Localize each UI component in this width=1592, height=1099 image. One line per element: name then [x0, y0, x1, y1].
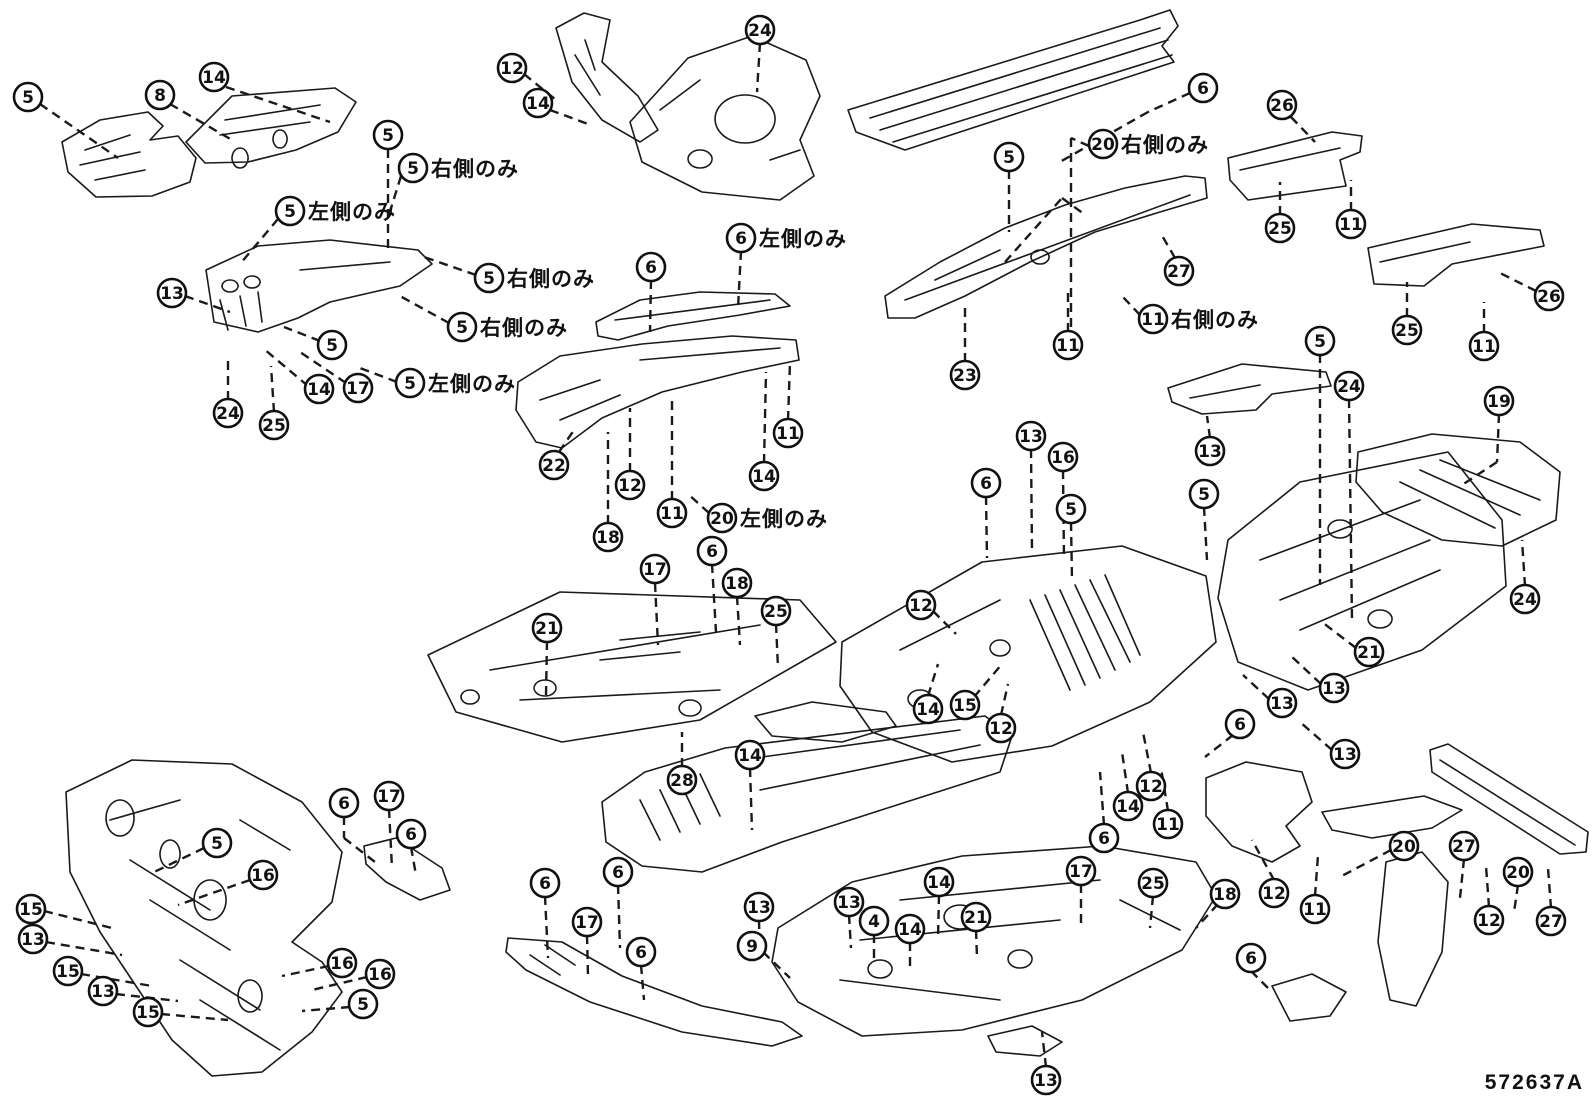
callout-6-80[interactable]: 6 [330, 789, 358, 817]
callout-side-note: 左側のみ [428, 372, 516, 396]
callout-number: 14 [927, 873, 951, 893]
callout-number: 16 [368, 965, 392, 985]
callout-20-22[interactable]: 20右側のみ [1089, 130, 1209, 158]
callout-number: 5 [456, 318, 468, 338]
leader-line [938, 895, 939, 938]
callout-11-26[interactable]: 11右側のみ [1139, 305, 1259, 333]
callout-6-85[interactable]: 6 [604, 858, 632, 886]
callout-14-47[interactable]: 14 [750, 462, 778, 490]
callout-6-20[interactable]: 6 [1189, 74, 1217, 102]
callout-number: 17 [377, 787, 401, 807]
leader-line [1460, 859, 1464, 898]
callout-side-note: 右側のみ [1171, 308, 1259, 332]
callout-14-11[interactable]: 14 [305, 375, 333, 403]
leader-line [928, 664, 938, 696]
callout-number: 25 [764, 602, 788, 622]
leader-line [271, 366, 274, 412]
callout-20-102[interactable]: 20 [1504, 858, 1532, 886]
leader-line [178, 880, 250, 905]
callout-number: 24 [216, 404, 240, 424]
callout-number: 12 [1477, 911, 1501, 931]
callout-24-64[interactable]: 24 [1511, 585, 1539, 613]
leader-line [1205, 735, 1233, 757]
callout-number: 14 [526, 94, 550, 114]
callout-6-82[interactable]: 6 [397, 820, 425, 848]
callout-24-13[interactable]: 24 [214, 399, 242, 427]
part-rear-side-member-rear [1368, 224, 1544, 286]
callout-16-77[interactable]: 16 [328, 949, 356, 977]
leader-line [618, 885, 620, 948]
callout-number: 14 [752, 467, 776, 487]
leader-line [150, 848, 204, 874]
callout-14-61[interactable]: 14 [1114, 792, 1142, 820]
leader-line [738, 251, 741, 308]
callout-21-65[interactable]: 21 [1355, 638, 1383, 666]
callout-12-59[interactable]: 12 [987, 714, 1015, 742]
callout-number: 27 [1539, 912, 1563, 932]
callout-9-88[interactable]: 9 [738, 932, 766, 960]
leader-line [1207, 416, 1210, 438]
leader-line [1338, 850, 1391, 878]
callout-14-58[interactable]: 14 [914, 695, 942, 723]
callout-15-72[interactable]: 15 [17, 895, 45, 923]
callout-number: 18 [725, 574, 749, 594]
callout-17-12[interactable]: 17 [344, 374, 372, 402]
part-rear-floor-pan-side [1356, 434, 1560, 546]
part-rear-floor-side-plate [1168, 364, 1331, 414]
leader-line [284, 327, 320, 341]
part-rear-side-member-front [1228, 132, 1362, 200]
callout-6-86[interactable]: 6 [627, 938, 655, 966]
callout-11-46[interactable]: 11 [774, 419, 802, 447]
callout-12-3[interactable]: 12 [498, 54, 526, 82]
callout-number: 17 [346, 379, 370, 399]
callout-12-56[interactable]: 12 [907, 591, 935, 619]
callout-11-25[interactable]: 11 [1054, 331, 1082, 359]
callout-13-87[interactable]: 13 [745, 893, 773, 921]
callout-12-43[interactable]: 12 [616, 471, 644, 499]
callout-13-38[interactable]: 13 [1017, 422, 1045, 450]
callout-side-note: 右側のみ [431, 157, 519, 181]
leader-line [1243, 675, 1269, 699]
leader-line [1252, 840, 1274, 880]
part-front-floor-side-member [516, 336, 799, 448]
callout-number: 6 [1098, 829, 1110, 849]
callout-25-95[interactable]: 25 [1139, 869, 1167, 897]
callout-24-5[interactable]: 24 [746, 16, 774, 44]
leader-line [545, 896, 548, 958]
leader-line [1486, 866, 1489, 907]
callout-number: 16 [251, 866, 275, 886]
leader-line [788, 362, 790, 420]
callout-side-note: 右側のみ [507, 267, 595, 291]
leader-line [1522, 540, 1525, 586]
callout-number: 12 [989, 719, 1013, 739]
callout-13-89[interactable]: 13 [835, 888, 863, 916]
leader-line [1031, 449, 1032, 552]
callout-side-note: 左側のみ [759, 227, 847, 251]
leader-line [170, 104, 232, 140]
leader-line [282, 966, 329, 976]
callout-number: 17 [643, 560, 667, 580]
callout-number: 13 [21, 930, 45, 950]
callout-number: 6 [645, 258, 657, 278]
callout-5-21[interactable]: 5 [995, 143, 1023, 171]
callout-number: 19 [1487, 392, 1511, 412]
callout-number: 18 [1213, 885, 1237, 905]
callout-number: 14 [307, 380, 331, 400]
callout-17-49[interactable]: 17 [641, 555, 669, 583]
callout-25-14[interactable]: 25 [260, 411, 288, 439]
callout-number: 12 [500, 59, 524, 79]
leader-line [1204, 507, 1207, 560]
leader-line [1143, 732, 1151, 773]
callout-21-53[interactable]: 21 [533, 614, 561, 642]
callout-5-8[interactable]: 5左側のみ [276, 197, 396, 225]
callout-number: 26 [1537, 287, 1561, 307]
callout-6-105[interactable]: 6 [1237, 944, 1265, 972]
leader-line [1291, 117, 1315, 142]
leader-line [688, 494, 709, 513]
callout-number: 24 [748, 21, 772, 41]
part-front-side-member-rear-section [885, 176, 1207, 318]
leader-line [1196, 904, 1218, 928]
callout-6-19[interactable]: 6左側のみ [727, 224, 847, 252]
part-rear-crossmember-brace [1322, 796, 1462, 838]
callout-number: 21 [964, 908, 988, 928]
callout-number: 15 [56, 962, 80, 982]
callout-number: 13 [1270, 694, 1294, 714]
diagram-line-art: 581412142455右側のみ5左側のみ135141724255右側のみ5右側… [0, 0, 1592, 1099]
part-rocker-outer-panel [848, 10, 1178, 150]
callout-number: 16 [1051, 448, 1075, 468]
leader-line [750, 768, 752, 830]
callout-number: 5 [404, 374, 416, 394]
callout-14-2[interactable]: 14 [200, 63, 228, 91]
callout-14-91[interactable]: 14 [896, 915, 924, 943]
part-center-floor-pan [840, 546, 1216, 762]
callout-12-103[interactable]: 12 [1475, 906, 1503, 934]
callout-number: 6 [405, 825, 417, 845]
callout-number: 13 [1322, 679, 1346, 699]
callout-13-9[interactable]: 13 [158, 279, 186, 307]
callout-5-37[interactable]: 5 [1190, 480, 1218, 508]
part-floor-bracket-small [1272, 974, 1346, 1021]
callout-number: 21 [535, 619, 559, 639]
callout-15-57[interactable]: 15 [951, 691, 979, 719]
callout-14-55[interactable]: 14 [736, 741, 764, 769]
leader-line [240, 219, 278, 264]
callout-16-71[interactable]: 16 [249, 861, 277, 889]
callout-number: 25 [1141, 874, 1165, 894]
callout-number: 24 [1513, 590, 1537, 610]
leader-line [400, 296, 449, 323]
callout-13-73[interactable]: 13 [19, 925, 47, 953]
leader-line [1042, 1032, 1046, 1067]
callout-8-1[interactable]: 8 [146, 81, 174, 109]
callout-number: 11 [1472, 337, 1496, 357]
callout-5-70[interactable]: 5 [203, 829, 231, 857]
callout-number: 26 [1270, 96, 1294, 116]
callout-5-34[interactable]: 5 [1306, 327, 1334, 355]
callout-23-24[interactable]: 23 [951, 361, 979, 389]
callout-5-16[interactable]: 5右側のみ [475, 264, 595, 292]
callout-number: 13 [1333, 745, 1357, 765]
callout-26-27[interactable]: 26 [1268, 91, 1296, 119]
callout-26-30[interactable]: 26 [1535, 282, 1563, 310]
leader-line [986, 496, 987, 558]
callout-27-101[interactable]: 27 [1450, 832, 1478, 860]
leader-line [1300, 722, 1332, 750]
callout-number: 13 [91, 982, 115, 1002]
callout-number: 25 [262, 416, 286, 436]
callout-number: 16 [330, 954, 354, 974]
callout-21-93[interactable]: 21 [962, 903, 990, 931]
callout-18-51[interactable]: 18 [723, 569, 751, 597]
callout-6-50[interactable]: 6 [698, 537, 726, 565]
callout-number: 11 [1056, 336, 1080, 356]
callout-5-17[interactable]: 5左側のみ [396, 369, 516, 397]
leader-line [737, 596, 740, 645]
leader-line [1148, 93, 1190, 112]
callout-11-62[interactable]: 11 [1154, 810, 1182, 838]
callout-number: 5 [357, 995, 369, 1015]
part-front-wheelhouse-panel [630, 36, 820, 200]
callout-4-90[interactable]: 4 [860, 907, 888, 935]
callout-number: 6 [635, 943, 647, 963]
leader-line [264, 349, 308, 386]
callout-number: 17 [1069, 862, 1093, 882]
callout-number: 17 [575, 913, 599, 933]
leader-line [550, 110, 588, 124]
callout-18-45[interactable]: 18 [594, 523, 622, 551]
leader-line [641, 965, 644, 1000]
callout-12-98[interactable]: 12 [1260, 879, 1288, 907]
callout-5-15[interactable]: 5右側のみ [448, 313, 568, 341]
part-crossmember-side-support [1378, 852, 1448, 1006]
callout-number: 13 [1034, 1071, 1058, 1091]
callout-number: 14 [916, 700, 940, 720]
callout-number: 14 [738, 746, 762, 766]
callout-25-31[interactable]: 25 [1393, 316, 1421, 344]
callout-13-67[interactable]: 13 [1268, 689, 1296, 717]
callout-number: 20 [710, 509, 734, 529]
callout-number: 12 [909, 596, 933, 616]
callout-number: 5 [326, 336, 338, 356]
leader-line [933, 611, 956, 634]
leader-line [1150, 896, 1153, 928]
leader-line [712, 564, 716, 632]
leader-line [302, 1007, 350, 1011]
callout-number: 6 [980, 474, 992, 494]
callout-number: 14 [1116, 797, 1140, 817]
callout-14-4[interactable]: 14 [524, 89, 552, 117]
callout-number: 13 [1019, 427, 1043, 447]
callout-5-6[interactable]: 5 [374, 121, 402, 149]
callout-5-10[interactable]: 5 [318, 331, 346, 359]
leader-line [1071, 138, 1089, 146]
callout-side-note: 左側のみ [740, 507, 828, 531]
callout-number: 11 [1156, 815, 1180, 835]
callout-number: 11 [776, 424, 800, 444]
callout-22-42[interactable]: 22 [540, 451, 568, 479]
callout-number: 15 [953, 696, 977, 716]
leader-line [1497, 414, 1499, 462]
callout-number: 12 [1262, 884, 1286, 904]
leader-line [1498, 272, 1536, 291]
leader-line [776, 624, 778, 668]
leader-line [1548, 868, 1551, 908]
leader-line [1122, 296, 1140, 315]
callout-number: 20 [1392, 837, 1416, 857]
leader-line [650, 280, 651, 332]
callout-17-94[interactable]: 17 [1067, 857, 1095, 885]
callout-number: 13 [160, 284, 184, 304]
callout-20-100[interactable]: 20 [1390, 832, 1418, 860]
callout-number: 5 [1003, 148, 1015, 168]
callout-25-28[interactable]: 25 [1266, 214, 1294, 242]
leader-line [1290, 655, 1321, 684]
callout-number: 13 [1198, 442, 1222, 462]
callout-11-29[interactable]: 11 [1337, 210, 1365, 238]
callout-15-74[interactable]: 15 [54, 957, 82, 985]
leader-line [1315, 855, 1318, 896]
callout-number: 5 [22, 88, 34, 108]
callout-number: 15 [19, 900, 43, 920]
parts-layer [62, 10, 1588, 1076]
leader-line [1322, 622, 1356, 648]
callout-number: 6 [706, 542, 718, 562]
callout-number: 5 [407, 159, 419, 179]
part-dash-panel [66, 760, 342, 1076]
callout-28-54[interactable]: 28 [668, 766, 696, 794]
callout-number: 15 [136, 1003, 160, 1023]
callout-side-note: 右側のみ [480, 316, 568, 340]
callout-number: 6 [1245, 949, 1257, 969]
leader-line [974, 664, 1002, 697]
callout-18-97[interactable]: 18 [1211, 880, 1239, 908]
callout-13-75[interactable]: 13 [89, 977, 117, 1005]
callout-number: 12 [618, 476, 642, 496]
callout-16-39[interactable]: 16 [1049, 443, 1077, 471]
callout-6-68[interactable]: 6 [1226, 710, 1254, 738]
part-front-crossmember-assembly [206, 240, 432, 332]
callout-6-18[interactable]: 6 [637, 253, 665, 281]
callout-6-63[interactable]: 6 [1090, 824, 1118, 852]
callout-12-60[interactable]: 12 [1137, 772, 1165, 800]
callout-number: 5 [1065, 500, 1077, 520]
callout-11-99[interactable]: 11 [1301, 895, 1329, 923]
callout-17-81[interactable]: 17 [375, 782, 403, 810]
callout-27-23[interactable]: 27 [1165, 257, 1193, 285]
callout-number: 27 [1452, 837, 1476, 857]
callout-number: 23 [953, 366, 977, 386]
callout-number: 6 [1234, 715, 1246, 735]
callout-number: 14 [202, 68, 226, 88]
part-front-apron-to-cowl-brace [556, 13, 658, 142]
callout-13-66[interactable]: 13 [1320, 674, 1348, 702]
leader-line [587, 935, 588, 976]
leader-line [1349, 399, 1352, 620]
callout-number: 12 [1139, 777, 1163, 797]
leader-line [1251, 971, 1268, 988]
callout-13-69[interactable]: 13 [1331, 740, 1359, 768]
callout-number: 6 [612, 863, 624, 883]
callout-20-48[interactable]: 20左側のみ [708, 504, 828, 532]
leader-line [161, 1014, 228, 1020]
callout-number: 25 [1395, 321, 1419, 341]
figure-code: 572637A [1485, 1071, 1584, 1095]
callout-number: 11 [1339, 215, 1363, 235]
leader-line [1122, 752, 1128, 793]
part-cowl-side-member-left [62, 112, 196, 197]
callout-side-note: 右側のみ [1121, 133, 1209, 157]
callout-number: 11 [1303, 900, 1327, 920]
callout-27-104[interactable]: 27 [1537, 907, 1565, 935]
callout-number: 18 [596, 528, 620, 548]
callout-number: 20 [1506, 863, 1530, 883]
leader-line [763, 952, 790, 978]
callout-number: 20 [1091, 135, 1115, 155]
callout-13-96[interactable]: 13 [1032, 1066, 1060, 1094]
callout-number: 24 [1337, 377, 1361, 397]
callout-5-41[interactable]: 5 [1057, 495, 1085, 523]
callout-number: 11 [660, 504, 684, 524]
callout-17-84[interactable]: 17 [573, 908, 601, 936]
callout-number: 5 [1314, 332, 1326, 352]
leader-line [44, 911, 112, 928]
callout-number: 4 [868, 912, 880, 932]
callout-number: 14 [898, 920, 922, 940]
callouts-layer: 581412142455右側のみ5左側のみ135141724255右側のみ5右側… [14, 16, 1565, 1094]
callout-number: 28 [670, 771, 694, 791]
callout-6-83[interactable]: 6 [531, 869, 559, 897]
callout-24-35[interactable]: 24 [1335, 372, 1363, 400]
parts-diagram-canvas: 581412142455右側のみ5左側のみ135141724255右側のみ5右側… [0, 0, 1592, 1099]
callout-number: 25 [1268, 219, 1292, 239]
leader-line [764, 372, 766, 463]
callout-side-note: 左側のみ [308, 200, 396, 224]
leader-line [40, 104, 118, 158]
leader-line [976, 930, 977, 958]
leader-line [849, 915, 851, 948]
callout-5-0[interactable]: 5 [14, 83, 42, 111]
callout-number: 9 [746, 937, 758, 957]
callout-13-36[interactable]: 13 [1196, 437, 1224, 465]
callout-11-32[interactable]: 11 [1470, 332, 1498, 360]
leader-line [424, 257, 476, 275]
callout-5-79[interactable]: 5 [349, 990, 377, 1018]
leader-line [344, 838, 375, 862]
callout-number: 6 [735, 229, 747, 249]
callout-5-7[interactable]: 5右側のみ [399, 154, 519, 182]
leader-line [757, 43, 760, 92]
callout-6-40[interactable]: 6 [972, 469, 1000, 497]
callout-number: 5 [382, 126, 394, 146]
leader-line [1001, 684, 1008, 715]
callout-number: 13 [837, 893, 861, 913]
callout-19-33[interactable]: 19 [1485, 387, 1513, 415]
callout-number: 13 [747, 898, 771, 918]
callout-number: 8 [154, 86, 166, 106]
callout-16-78[interactable]: 16 [366, 960, 394, 988]
callout-11-44[interactable]: 11 [658, 499, 686, 527]
part-floor-side-inner-sill [596, 292, 790, 340]
callout-25-52[interactable]: 25 [762, 597, 790, 625]
callout-15-76[interactable]: 15 [134, 998, 162, 1026]
callout-14-92[interactable]: 14 [925, 868, 953, 896]
callout-number: 5 [483, 269, 495, 289]
